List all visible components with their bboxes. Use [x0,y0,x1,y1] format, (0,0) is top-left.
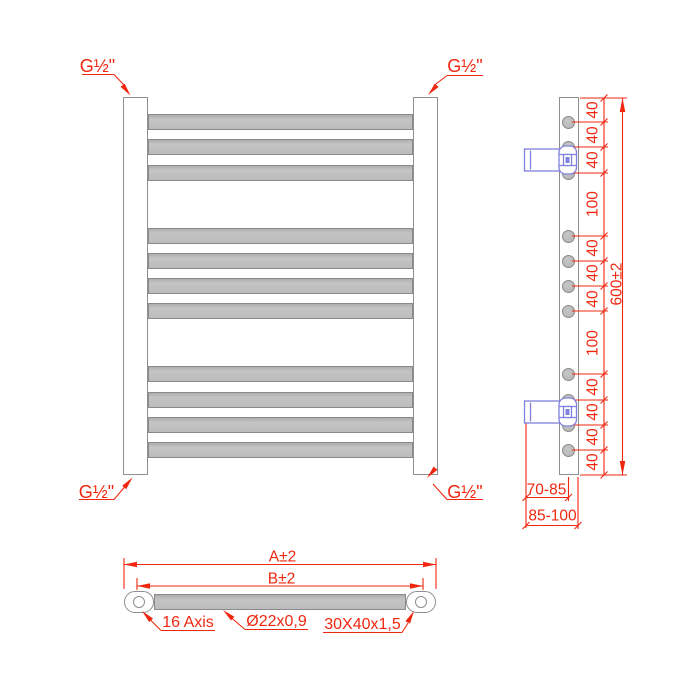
thread-label-bottom-right: G½" [447,483,482,501]
thread-label-bottom-left: G½" [79,483,114,501]
dim-label-segment: 40 [585,403,601,420]
thread-label-top-right: G½" [447,57,482,75]
dim-label-segment: 40 [585,126,601,143]
dim-label-segment: 40 [585,290,601,307]
dim-label-segment: 100 [585,191,601,217]
dim-label-segment: 40 [585,151,601,168]
dim-label-wall-to-axis: 70-85 [527,482,567,498]
wall-bracket-upper [525,146,577,174]
dim-label-segment: 40 [585,378,601,395]
annotation-tube-spec: Ø22x0,9 [246,614,306,630]
dim-label-segment: 40 [585,264,601,281]
dim-label-overall-width: A±2 [269,549,296,565]
dim-label-segment: 40 [585,101,601,118]
wall-bracket-lower [525,398,577,426]
annotation-profile-spec: 30X40x1,5 [324,617,401,633]
dim-label-overall-height: 600±2 [609,263,625,306]
thread-label-top-left: G½" [80,57,115,75]
dim-label-segment: 40 [585,428,601,445]
dim-label-segment: 100 [585,330,601,356]
technical-drawing-towel-radiator: G½" G½" G½" G½" 40 40 40 100 40 40 40 10… [0,0,700,700]
dim-label-segment: 40 [585,453,601,470]
dim-label-segment: 40 [585,239,601,256]
annotation-axis: 16 Axis [162,615,214,631]
leader-thread-top-right [428,76,483,96]
dim-label-centers-width: B±2 [268,571,295,587]
leader-thread-top-left [82,75,131,96]
dim-label-wall-to-front: 85-100 [528,508,576,524]
